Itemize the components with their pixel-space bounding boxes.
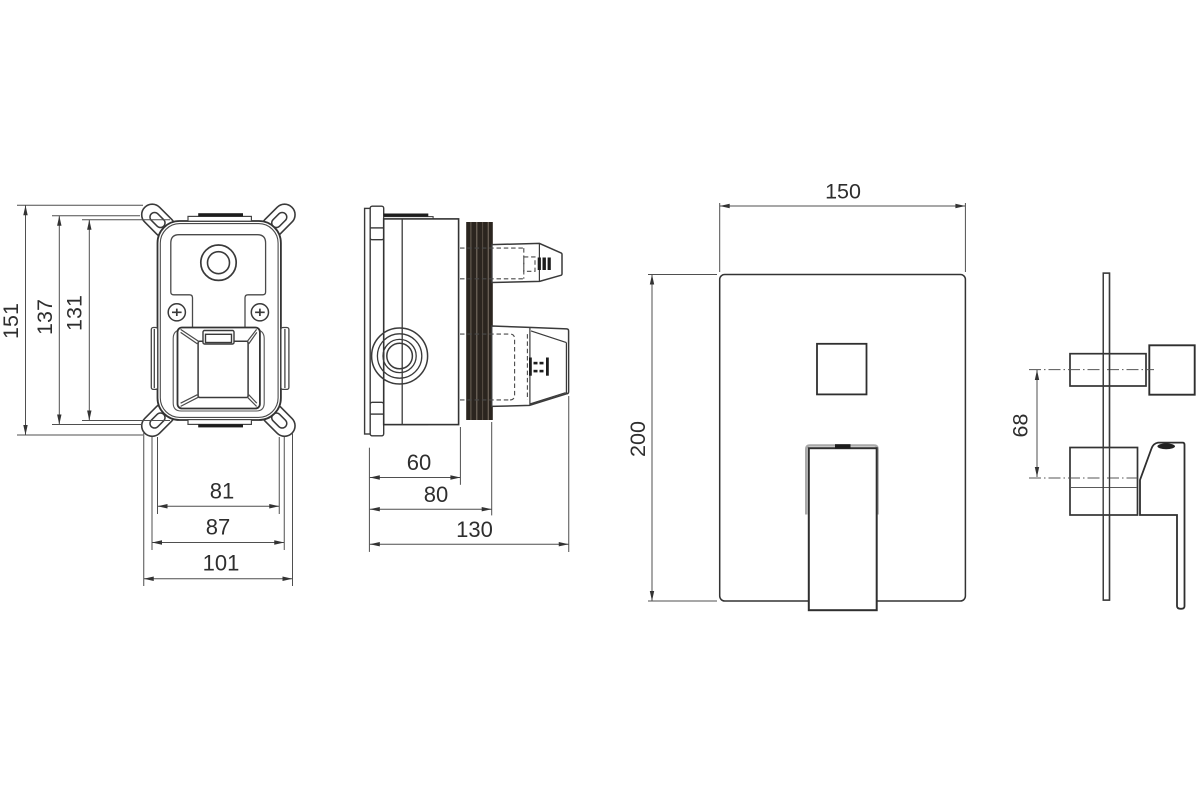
svg-text:130: 130 — [456, 517, 493, 542]
svg-text:101: 101 — [203, 551, 240, 576]
svg-text:60: 60 — [407, 450, 431, 475]
svg-text:151: 151 — [0, 303, 23, 339]
svg-text:200: 200 — [626, 421, 650, 457]
svg-text:131: 131 — [63, 295, 87, 331]
svg-text:150: 150 — [825, 180, 861, 204]
svg-text:80: 80 — [424, 482, 448, 507]
svg-text:68: 68 — [1009, 414, 1033, 438]
svg-text:81: 81 — [210, 479, 234, 504]
svg-text:87: 87 — [206, 515, 230, 540]
svg-text:137: 137 — [33, 299, 57, 335]
